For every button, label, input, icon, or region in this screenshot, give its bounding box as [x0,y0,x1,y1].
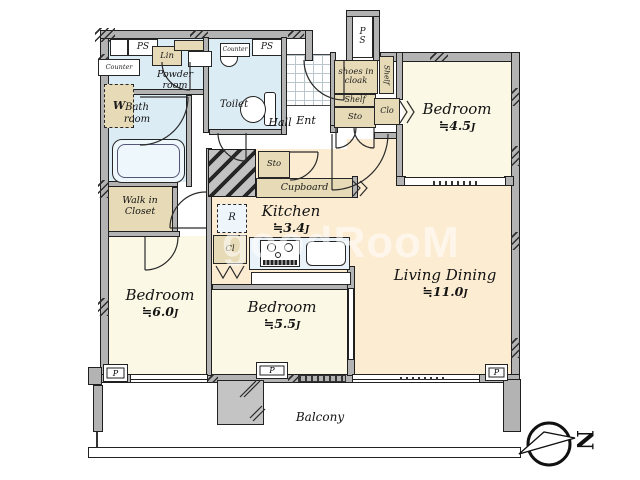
room-area: ≒11.0 [422,284,463,299]
wall-bath-right [186,95,192,187]
ps-box-blank [110,39,128,56]
clo-label: Clo [380,107,394,115]
room-area: ≒6.0 [142,304,174,319]
shelf-strip-top [174,40,204,51]
powder-room-label: Powder room [143,69,207,92]
pillar-label: P [494,368,499,377]
balcony-railing [88,447,521,458]
room-area-unit: J [471,123,475,133]
vanity-sink [188,51,212,67]
room-area-unit: J [174,309,178,319]
toilet-label: Toilet [206,99,262,111]
ps-box: PS [252,39,282,56]
shelf-label: Shelf [345,96,366,104]
bedroom55-label: Bedroom ≒5.5J [217,298,347,332]
entrance-tile [285,54,331,106]
counter-label: Counter [223,47,248,53]
hatch-mark [511,338,520,358]
balcony-wall-left-lower [93,385,103,432]
hatch-mark [288,374,298,383]
bath-room-label: Bath room [108,102,166,126]
balcony-wall-left [88,367,102,385]
room-area: ≒5.5 [264,316,296,331]
walk-in-closet-label: Walk in Closet [108,195,172,218]
room-name: Living Dining [378,266,512,284]
partition-bedroom45-ld [404,177,506,186]
balcony-column [217,380,264,425]
counter-box-toilet: Counter [220,43,250,57]
hatch-mark [511,232,520,250]
storage-box-hall: Sto [258,151,290,178]
hatch-mark [288,30,304,39]
wall-bedroom45-left-upper [396,52,403,100]
cupboard-box: Cupboard [256,178,353,198]
wall-toilet-bottom [209,129,285,135]
balcony-label: Balcony [283,410,357,424]
window-bedroom55-louver [298,375,346,382]
living-dining-label: Living Dining ≒11.0J [378,266,512,300]
shelf-box-vertical: Shelf [379,56,394,94]
room-area: ≒4.5 [439,118,471,133]
hatch-mark [208,374,218,383]
counter-label: Counter [106,64,133,71]
window-ld-dash [400,377,444,380]
ps-label: PS [261,43,273,52]
wall-wic-right [172,187,178,237]
shoes-in-cloak-box: shoes in cloak [334,60,378,94]
hatch-mark [511,88,520,106]
hatch-mark [511,146,520,166]
room-name: Bedroom [402,100,512,118]
sto-label: Sto [348,113,362,122]
closet-box-bedroom45: Clo [374,98,400,125]
sto-label: Sto [267,160,281,169]
pillar: P [103,364,128,382]
shoes-in-cloak-label: shoes in cloak [338,68,373,86]
pillar-label: P [269,366,274,375]
compass-icon [519,423,575,465]
room-area-unit: J [463,289,467,299]
room-name: Bedroom [108,286,212,304]
ps-vertical-label: P S [359,28,365,47]
storage-box-cloak: Sto [334,107,376,128]
room-area-unit: J [296,321,300,331]
pillar: P [256,362,288,379]
shelf-label: Shelf [383,65,391,85]
hatch-mark [190,30,208,39]
duct-space [208,149,256,197]
hatch-mark [430,53,448,62]
ps-label: PS [137,43,149,52]
ps-shaft-box: P S [352,16,373,58]
balcony-wall-right [503,379,521,432]
lin-label: Lin [160,52,174,61]
ent-label: Ent [284,114,328,127]
counter-front [251,272,351,285]
partition-bedroom55-ld [348,288,354,360]
counter-box-left: Counter [98,59,140,76]
bedroom45-label: Bedroom ≒4.5J [402,100,512,134]
pillar-label: P [113,369,118,378]
room-name: Bedroom [217,298,347,316]
wall-bedroom6-top [108,231,180,237]
bathtub-inner [117,144,180,178]
wall-entrance-step [305,30,313,61]
window-bedroom6 [130,374,208,383]
watermark: goodRooM [222,218,460,268]
pillar: P [485,364,508,381]
shelf-box: Shelf [334,94,376,107]
cupboard-label: Cupboard [281,183,329,193]
floor-plan: PS Counter Lin Counter PS P S shoes in c… [0,0,640,480]
bedroom6-label: Bedroom ≒6.0J [108,286,212,320]
wall-ps-tower-right [373,10,380,61]
compass-north-letter: N [571,430,597,450]
